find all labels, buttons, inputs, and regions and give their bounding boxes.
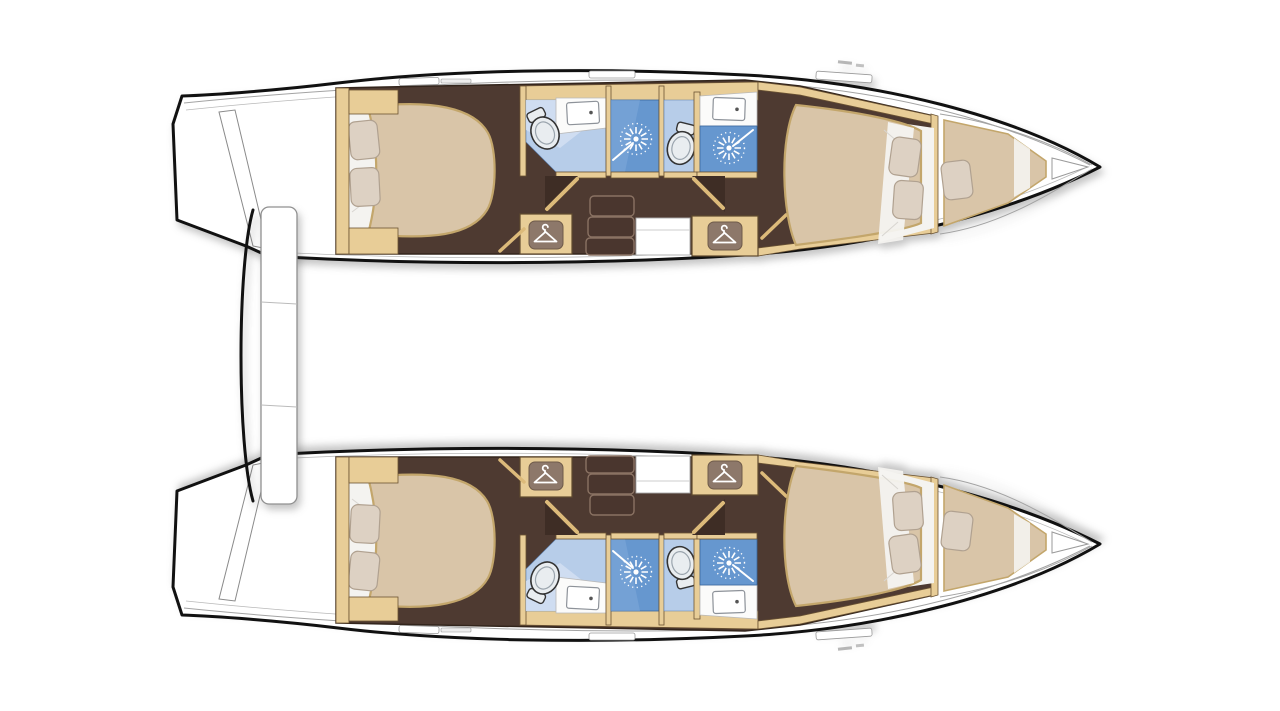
head-wall bbox=[606, 86, 611, 176]
deck-fitting bbox=[856, 64, 864, 68]
pillow bbox=[888, 136, 922, 178]
step bbox=[586, 238, 634, 255]
stern-platform bbox=[241, 207, 297, 504]
aft-cabin bbox=[348, 104, 495, 236]
sink-icon bbox=[713, 97, 746, 120]
head-wall-bottom bbox=[664, 172, 697, 178]
aft-crossbeam bbox=[241, 210, 253, 501]
platform-column bbox=[261, 207, 297, 504]
hanger-icon bbox=[529, 221, 563, 249]
hull-bottom bbox=[173, 448, 1100, 650]
deck-hatch bbox=[589, 71, 635, 78]
step bbox=[588, 217, 634, 237]
sink-icon bbox=[566, 101, 599, 125]
pillow bbox=[350, 167, 381, 206]
pillow bbox=[892, 180, 924, 220]
aft-cabinet-top bbox=[349, 90, 398, 114]
deck-hatch bbox=[399, 77, 439, 85]
hull-side-cabinet bbox=[336, 88, 349, 254]
head-wall bbox=[694, 92, 700, 176]
hanger-icon bbox=[708, 461, 742, 489]
catamaran-layout-diagram bbox=[0, 0, 1280, 711]
floorplan-canvas bbox=[0, 0, 1280, 711]
galley-counter bbox=[636, 218, 690, 255]
head-wall bbox=[659, 86, 664, 176]
head-wall-bottom bbox=[611, 172, 659, 178]
pillow bbox=[348, 120, 381, 161]
aft-cabinet-bottom bbox=[349, 228, 398, 254]
forward-cabin bbox=[784, 105, 934, 245]
hanger-icon bbox=[708, 222, 742, 250]
step bbox=[590, 196, 634, 216]
pillow bbox=[940, 159, 973, 200]
aft-cabin-bed bbox=[368, 104, 495, 236]
deck-fitting bbox=[838, 60, 852, 64]
deck-fitting bbox=[441, 79, 471, 83]
head-wall bbox=[520, 86, 526, 176]
hull-top bbox=[173, 60, 1100, 262]
hanger-icon bbox=[529, 462, 563, 490]
